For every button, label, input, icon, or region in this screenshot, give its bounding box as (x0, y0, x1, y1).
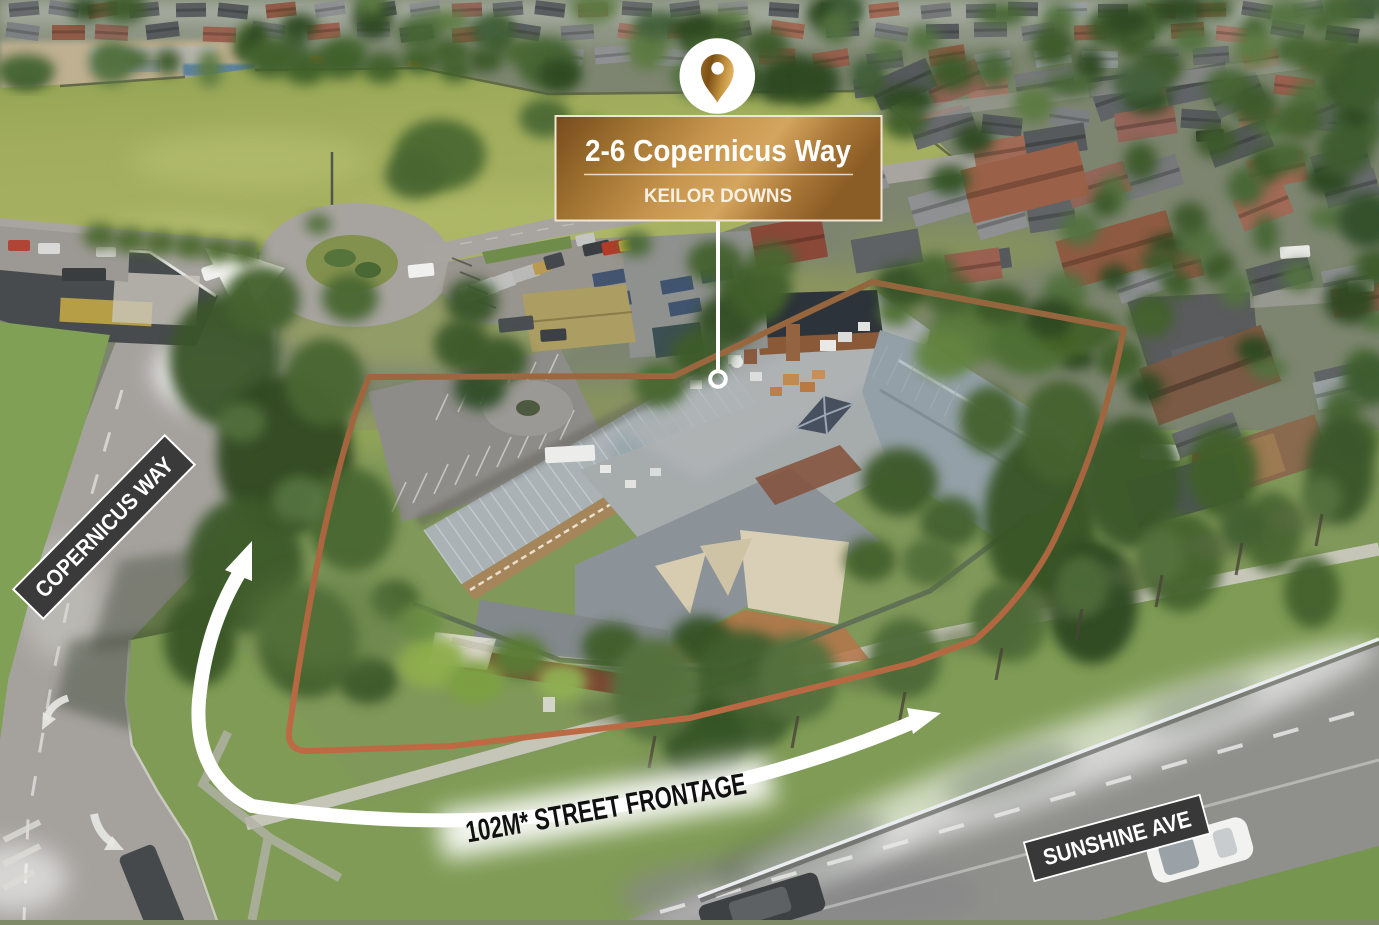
svg-text:KEILOR DOWNS: KEILOR DOWNS (644, 186, 792, 207)
svg-text:2-6 Copernicus Way: 2-6 Copernicus Way (585, 133, 852, 168)
